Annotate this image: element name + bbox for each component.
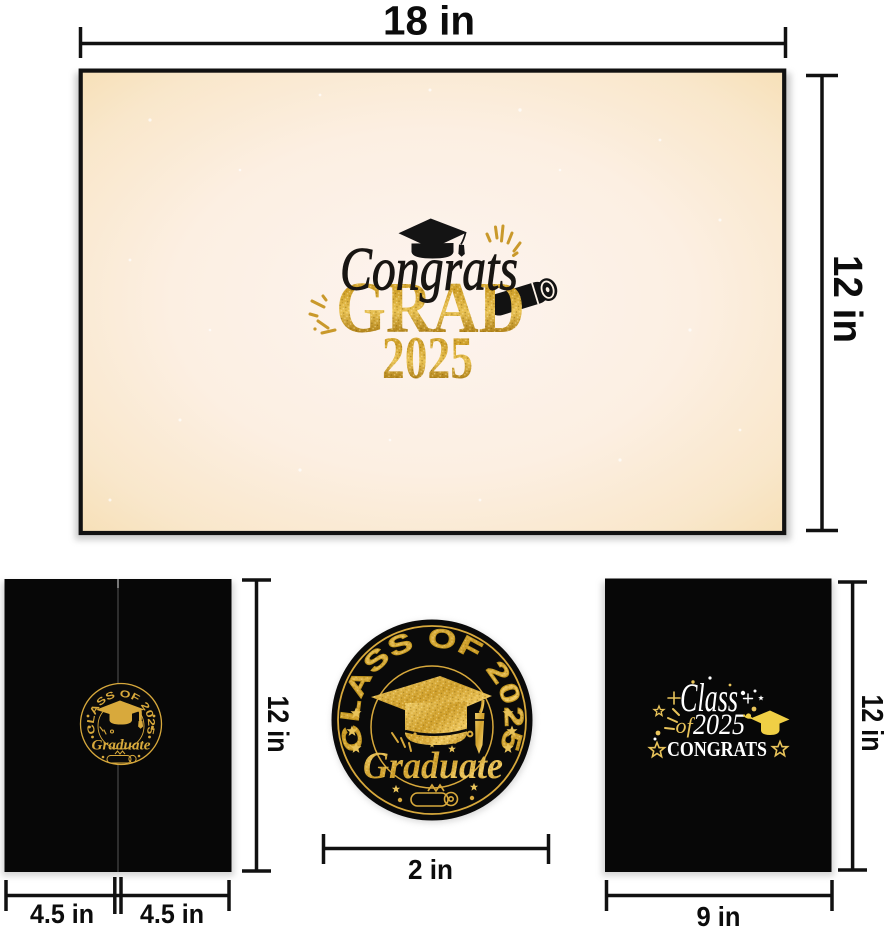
svg-text:12 in: 12 in — [261, 696, 294, 753]
svg-text:4.5 in: 4.5 in — [30, 899, 94, 929]
svg-text:Graduate: Graduate — [363, 745, 503, 787]
svg-text:2025: 2025 — [382, 325, 473, 391]
svg-text:4.5 in: 4.5 in — [140, 899, 204, 929]
svg-text:12 in: 12 in — [825, 255, 871, 343]
svg-text:CONGRATS: CONGRATS — [667, 737, 767, 761]
svg-text:12 in: 12 in — [855, 695, 888, 752]
svg-text:Graduate: Graduate — [92, 738, 152, 754]
svg-text:2 in: 2 in — [408, 854, 453, 885]
svg-text:9 in: 9 in — [697, 901, 741, 929]
svg-text:18 in: 18 in — [383, 0, 475, 44]
